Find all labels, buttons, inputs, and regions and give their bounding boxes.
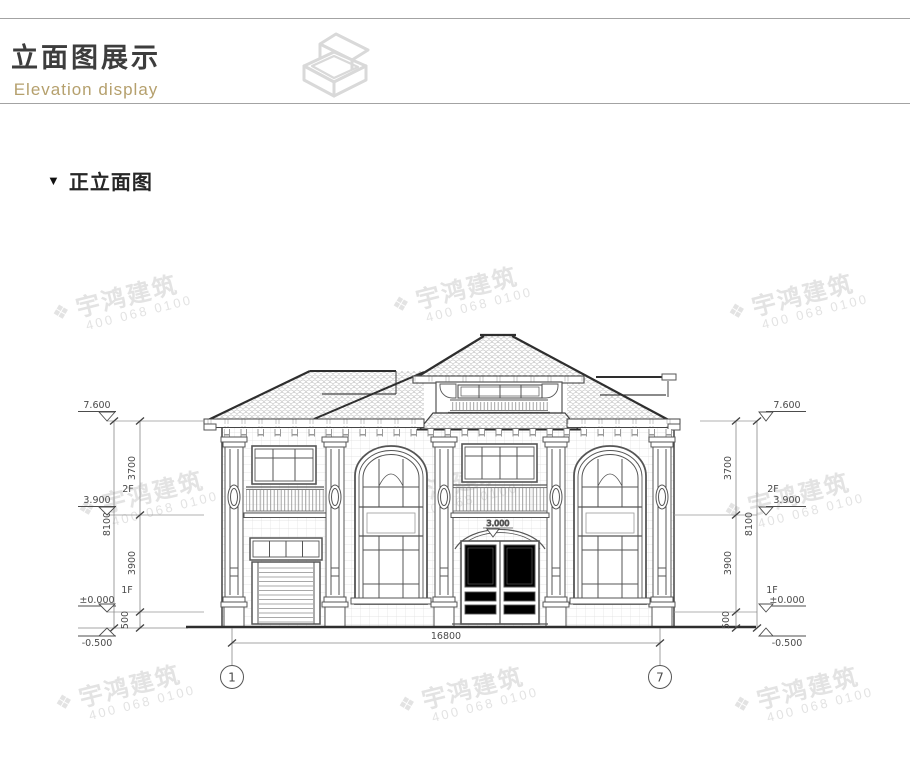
roof [204, 335, 680, 437]
dimensions-bottom: 16800 1 7 [221, 628, 672, 689]
arched-window-left [351, 446, 431, 604]
eave-fascia-right [567, 419, 680, 428]
dimensions-right: 8100 3700 3900 500 7.600 2F 3.900 1F ±0.… [674, 400, 806, 649]
dim-16800: 16800 [431, 631, 461, 642]
pavilion-frieze [413, 376, 584, 413]
dentil-row [224, 429, 674, 437]
dim-500-left: 500 [120, 611, 131, 629]
axis-1-label: 1 [228, 671, 236, 685]
floor2-label-left: 2F [122, 484, 134, 495]
pavilion-lower-eave [420, 413, 578, 429]
dim-3700-right: 3700 [723, 456, 734, 480]
floor1-label-left: 1F [121, 585, 133, 596]
floor2-label-right: 2F [767, 484, 779, 495]
eave-fascia-left [204, 419, 424, 428]
level-7600-right: 7.600 [773, 400, 800, 411]
level-7600-left: 7.600 [83, 400, 110, 411]
axis-7-label: 7 [656, 671, 664, 685]
pilaster-2 [322, 437, 348, 627]
level-0000-left: ±0.000 [79, 595, 114, 606]
pilaster-left-corner [221, 437, 247, 627]
dimensions-left: 8100 3700 3900 500 7.600 2F 3.900 1F ±0.… [78, 400, 204, 649]
dim-3900-right: 3900 [723, 551, 734, 575]
pilaster-right-corner [649, 437, 675, 627]
box-3d-icon [300, 30, 376, 98]
dim-3700-left: 3700 [127, 456, 138, 480]
level-neg0500-right: -0.500 [772, 638, 803, 649]
pilaster-entrance-right [543, 437, 569, 627]
level-0000-right: ±0.000 [769, 595, 804, 606]
dim-500-right: 500 [721, 611, 732, 629]
pilaster-entrance-left [431, 437, 457, 627]
arched-window-right [570, 446, 650, 604]
level-3900-right: 3.900 [773, 495, 800, 506]
level-neg0500-left: -0.500 [82, 638, 113, 649]
roof-left-wing [206, 371, 424, 421]
dim-8100-left: 8100 [102, 512, 113, 536]
front-elevation-drawing: 3.000 8100 3700 3900 [0, 0, 910, 768]
front-door [452, 541, 548, 624]
dim-3900-left: 3900 [127, 551, 138, 575]
level-3900-left: 3.900 [83, 495, 110, 506]
svg-text:3.000: 3.000 [487, 519, 510, 528]
dim-8100-right: 8100 [744, 512, 755, 536]
